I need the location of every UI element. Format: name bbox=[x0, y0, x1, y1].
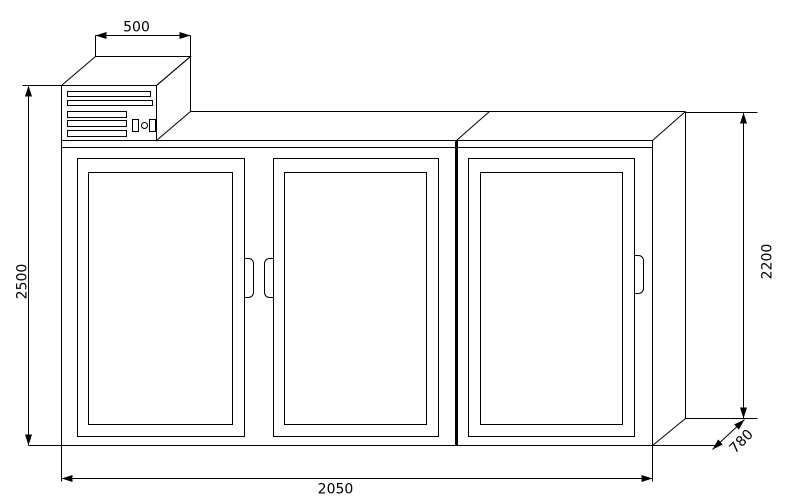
vent-slot bbox=[68, 131, 127, 137]
indicator-lamp bbox=[142, 123, 148, 129]
door-left-frame bbox=[78, 159, 245, 437]
dimension-body-height: 2200 bbox=[686, 113, 776, 419]
door-left-handle bbox=[245, 259, 254, 298]
switch-button bbox=[133, 120, 139, 132]
dim-label-overall-width: 2050 bbox=[318, 482, 354, 498]
door-right bbox=[469, 159, 644, 437]
side-face-bottom-edge bbox=[653, 419, 686, 446]
dim-label-body-height: 2200 bbox=[760, 244, 776, 280]
door-middle bbox=[265, 159, 439, 437]
vent-slot bbox=[68, 121, 127, 127]
compressor-unit bbox=[62, 57, 191, 141]
switch-button bbox=[150, 120, 156, 132]
dimension-unit-width: 500 bbox=[96, 20, 191, 57]
compressor-right-face bbox=[157, 57, 191, 141]
dimension-overall-height: 2500 bbox=[15, 86, 62, 446]
technical-drawing-canvas: 500 2500 2200 780 2050 bbox=[0, 0, 805, 500]
dim-label-unit-width: 500 bbox=[123, 20, 150, 36]
door-right-handle bbox=[635, 256, 644, 294]
cabinet-drawing: 500 2500 2200 780 2050 bbox=[0, 0, 805, 500]
dim-label-depth: 780 bbox=[727, 427, 757, 457]
compressor-top-face bbox=[62, 57, 191, 86]
compressor-front-face bbox=[62, 86, 157, 141]
top-face-right-edge bbox=[653, 112, 686, 141]
dimension-depth: 780 bbox=[653, 420, 757, 457]
door-middle-panel bbox=[285, 173, 427, 425]
door-left bbox=[78, 159, 254, 437]
cabinet-front-face bbox=[62, 141, 653, 446]
dim-label-overall-height: 2500 bbox=[15, 264, 31, 300]
door-right-panel bbox=[481, 173, 623, 425]
top-face-separator-edge bbox=[457, 112, 490, 141]
cabinet-body bbox=[62, 112, 686, 446]
vent-slot bbox=[68, 101, 153, 106]
vent-slot bbox=[68, 112, 127, 118]
vent-slot bbox=[68, 92, 151, 97]
door-right-frame bbox=[469, 159, 635, 437]
dimension-overall-width: 2050 bbox=[62, 446, 653, 498]
door-left-panel bbox=[89, 173, 233, 425]
door-middle-frame bbox=[274, 159, 439, 437]
door-middle-handle bbox=[265, 259, 274, 298]
